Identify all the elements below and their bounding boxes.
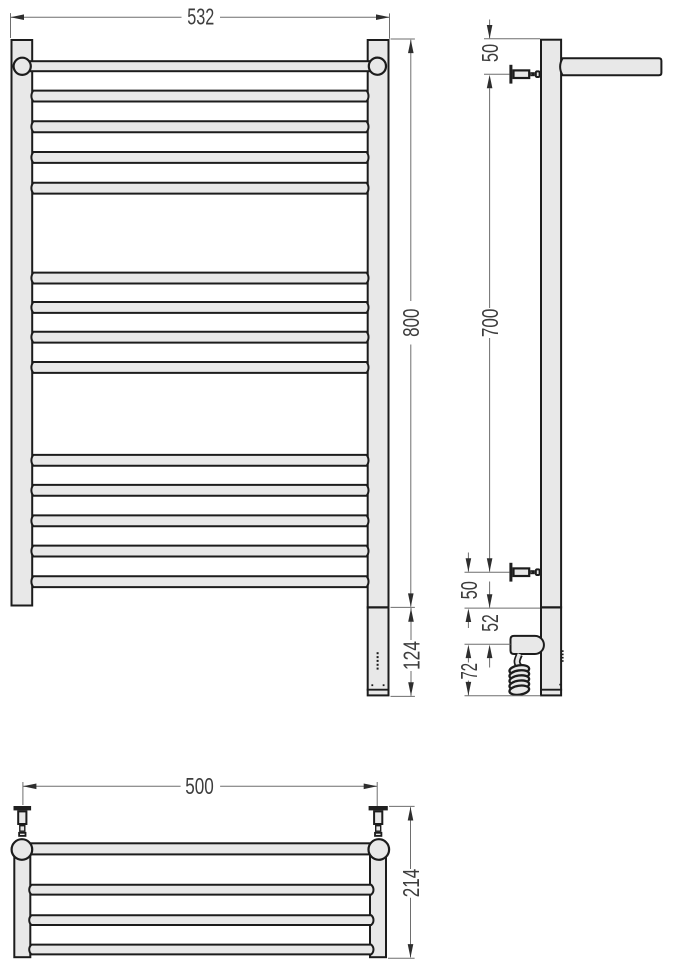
svg-text:800: 800 — [398, 309, 424, 337]
svg-text:532: 532 — [187, 3, 214, 29]
svg-text:500: 500 — [185, 773, 214, 799]
svg-text:700: 700 — [477, 309, 503, 338]
svg-text:52: 52 — [477, 614, 503, 632]
svg-text:214: 214 — [398, 869, 424, 897]
svg-text:124: 124 — [398, 641, 424, 670]
svg-text:50: 50 — [477, 44, 503, 62]
svg-text:72: 72 — [456, 663, 482, 680]
svg-text:50: 50 — [456, 581, 482, 599]
